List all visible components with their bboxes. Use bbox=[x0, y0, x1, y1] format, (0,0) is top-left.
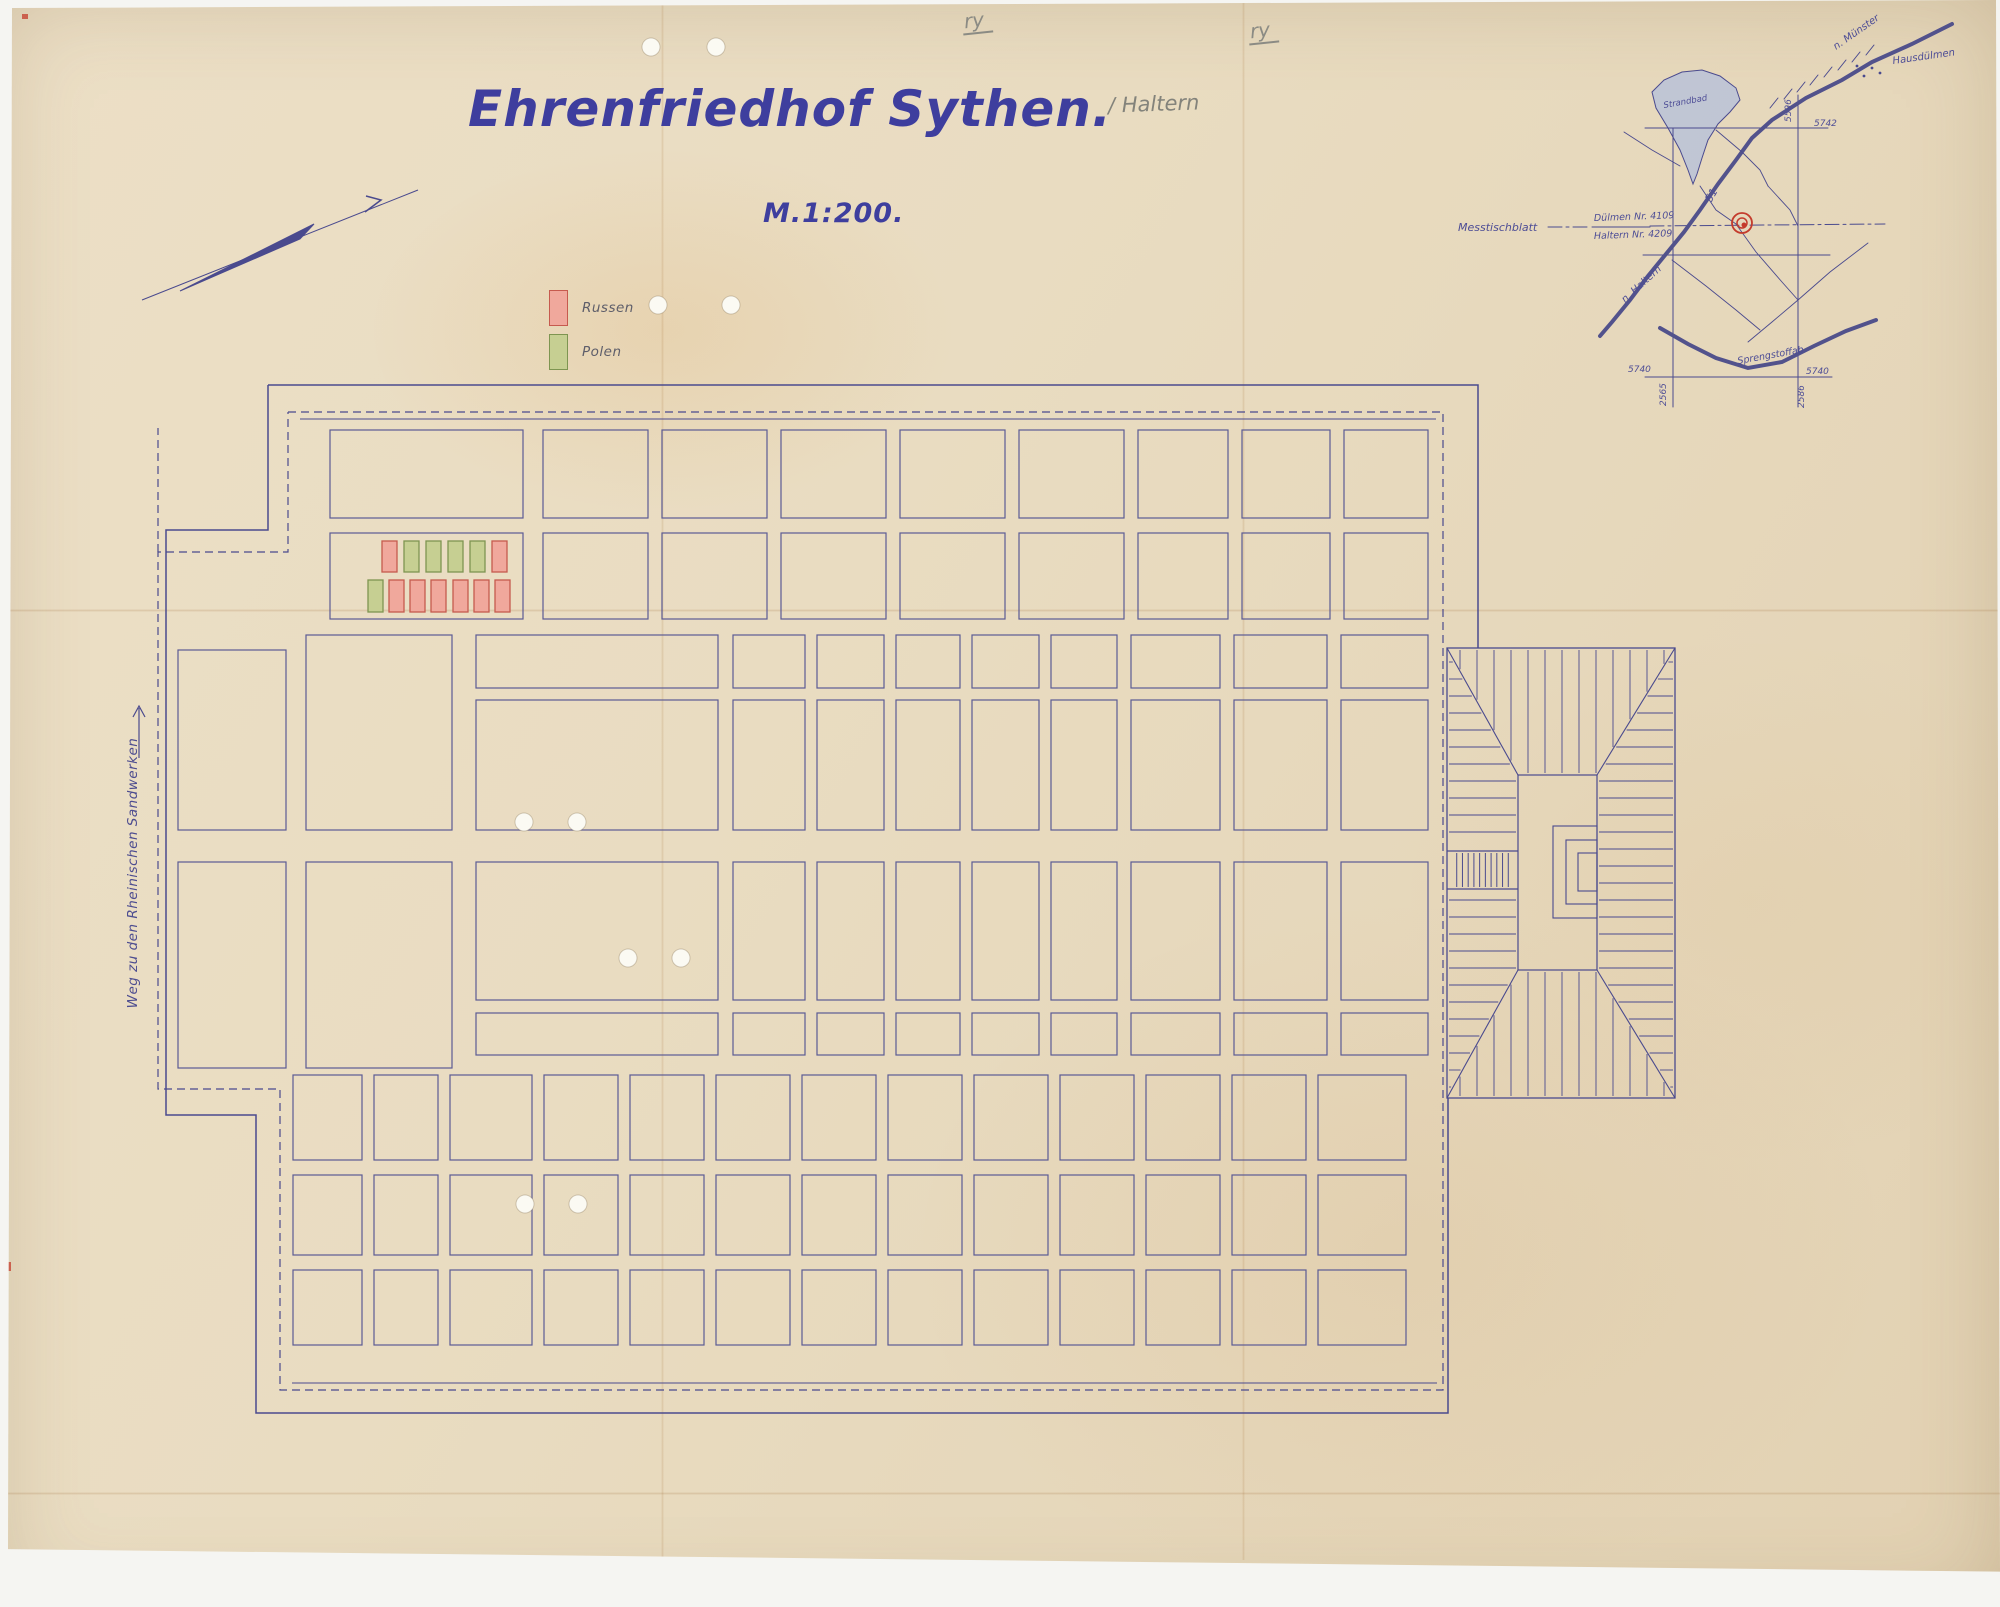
memorial-corner-mitre bbox=[1447, 648, 1518, 775]
red-edge-mark bbox=[8, 1262, 11, 1271]
red-edge-mark bbox=[6, 88, 9, 98]
burial-plot bbox=[293, 1270, 362, 1345]
pencil-mark: ry bbox=[1247, 17, 1280, 46]
scale-label: M.1:200. bbox=[763, 198, 904, 229]
burial-plot bbox=[896, 1013, 960, 1055]
memorial-outer-wall bbox=[1447, 648, 1675, 1098]
legend-label-russen: Russen bbox=[582, 300, 634, 316]
burial-plot bbox=[544, 1270, 618, 1345]
burial-plot bbox=[630, 1175, 704, 1255]
red-edge-mark bbox=[5, 210, 9, 218]
burial-plot bbox=[476, 700, 718, 830]
burial-plot bbox=[662, 533, 767, 619]
burial-plot bbox=[1242, 430, 1330, 518]
burial-plot bbox=[543, 533, 648, 619]
minimap-line bbox=[1798, 243, 1868, 300]
north-arrow-tip bbox=[365, 196, 381, 212]
burial-plot bbox=[1138, 430, 1228, 518]
grave-marker-russen bbox=[389, 580, 404, 612]
burial-plot bbox=[1344, 533, 1428, 619]
minimap-lake bbox=[1652, 70, 1740, 184]
grave-marker-russen bbox=[410, 580, 425, 612]
burial-plot bbox=[1051, 1013, 1117, 1055]
burial-plot bbox=[900, 533, 1005, 619]
burial-plot bbox=[1234, 635, 1327, 688]
memorial-monument bbox=[1578, 853, 1597, 891]
grave-marker-russen bbox=[495, 580, 510, 612]
grave-marker-russen bbox=[431, 580, 446, 612]
burial-plot bbox=[630, 1270, 704, 1345]
burial-plot bbox=[1318, 1270, 1406, 1345]
burial-plot bbox=[888, 1175, 962, 1255]
minimap-line bbox=[1838, 60, 1846, 70]
burial-plot bbox=[1146, 1270, 1220, 1345]
minimap-house-dot bbox=[1863, 75, 1866, 78]
title-annotation-pencil: / Haltern bbox=[1108, 90, 1200, 117]
minimap-label: 5740 bbox=[1806, 367, 1829, 377]
memorial-corner-mitre bbox=[1597, 970, 1675, 1098]
red-edge-mark bbox=[6, 62, 9, 76]
burial-plot bbox=[896, 635, 960, 688]
burial-plot bbox=[974, 1075, 1048, 1160]
burial-plot bbox=[476, 862, 718, 1000]
grave-marker-russen bbox=[382, 541, 397, 572]
burial-plot bbox=[1051, 635, 1117, 688]
minimap-label: n. Münster bbox=[1831, 12, 1882, 52]
grave-marker-russen bbox=[492, 541, 507, 572]
burial-plot bbox=[476, 635, 718, 688]
burial-plot bbox=[178, 650, 286, 830]
burial-plot bbox=[1146, 1175, 1220, 1255]
burial-plot bbox=[888, 1270, 962, 1345]
legend: Russen Polen bbox=[549, 290, 634, 378]
burial-plot bbox=[1341, 700, 1428, 830]
burial-plot bbox=[374, 1075, 438, 1160]
burial-plot bbox=[1344, 430, 1428, 518]
burial-plot bbox=[374, 1175, 438, 1255]
burial-plot bbox=[293, 1075, 362, 1160]
burial-plot bbox=[972, 1013, 1039, 1055]
burial-plot bbox=[1232, 1270, 1306, 1345]
memorial-corner-mitre bbox=[1447, 970, 1518, 1098]
burial-plot bbox=[900, 430, 1005, 518]
burial-plot bbox=[972, 635, 1039, 688]
burial-plot bbox=[972, 700, 1039, 830]
memorial-monument bbox=[1566, 840, 1597, 904]
burial-plot bbox=[476, 1013, 718, 1055]
burial-plot bbox=[293, 1175, 362, 1255]
minimap-label: Dülmen Nr. 4109 bbox=[1594, 210, 1675, 224]
site-plan-drawing: Hausdülmenn. Münster51n. HalternStrandba… bbox=[0, 0, 2000, 1607]
burial-plot bbox=[450, 1175, 532, 1255]
punch-hole bbox=[672, 949, 690, 967]
page-title: Ehrenfriedhof Sythen. bbox=[468, 80, 1112, 138]
legend-item-russen: Russen bbox=[549, 290, 634, 326]
minimap-label: 5596 bbox=[1784, 99, 1794, 122]
punch-hole bbox=[649, 296, 667, 314]
paper-sheet: Hausdülmenn. Münster51n. HalternStrandba… bbox=[0, 0, 2000, 1607]
burial-plot bbox=[802, 1075, 876, 1160]
burial-plot bbox=[1060, 1075, 1134, 1160]
minimap-site-marker bbox=[1742, 223, 1747, 228]
burial-plot bbox=[733, 862, 805, 1000]
minimap-line bbox=[1824, 67, 1832, 77]
minimap-label: Messtischblatt bbox=[1458, 221, 1538, 234]
burial-plot bbox=[781, 430, 886, 518]
minimap-line bbox=[1852, 52, 1860, 62]
burial-plot bbox=[716, 1175, 790, 1255]
burial-plot bbox=[1060, 1175, 1134, 1255]
punch-hole bbox=[619, 949, 637, 967]
burial-plot bbox=[1318, 1175, 1406, 1255]
burial-plot bbox=[896, 862, 960, 1000]
burial-plot bbox=[781, 533, 886, 619]
memorial-courtyard bbox=[1518, 775, 1597, 970]
grave-marker-polen bbox=[404, 541, 419, 572]
grave-marker-polen bbox=[470, 541, 485, 572]
grave-marker-polen bbox=[448, 541, 463, 572]
legend-label-polen: Polen bbox=[582, 344, 622, 360]
burial-plot bbox=[1131, 862, 1220, 1000]
burial-plot bbox=[716, 1075, 790, 1160]
minimap-label: Haltern Nr. 4209 bbox=[1594, 228, 1673, 242]
punch-hole bbox=[707, 38, 725, 56]
burial-plot bbox=[1232, 1175, 1306, 1255]
punch-hole bbox=[642, 38, 660, 56]
minimap-label: 2565 bbox=[1659, 383, 1669, 406]
legend-swatch-polen bbox=[549, 334, 568, 370]
minimap-label: 2586 bbox=[1797, 385, 1807, 408]
burial-plot bbox=[1060, 1270, 1134, 1345]
burial-plot bbox=[1019, 533, 1124, 619]
burial-plot bbox=[888, 1075, 962, 1160]
burial-plot bbox=[817, 862, 884, 1000]
burial-plot bbox=[1234, 1013, 1327, 1055]
burial-plot bbox=[817, 635, 884, 688]
burial-plot bbox=[544, 1075, 618, 1160]
minimap-line bbox=[1672, 260, 1760, 330]
minimap-house-dot bbox=[1856, 65, 1859, 68]
burial-plot bbox=[450, 1270, 532, 1345]
minimap-line bbox=[1624, 132, 1680, 166]
burial-plot bbox=[716, 1270, 790, 1345]
burial-plot bbox=[974, 1270, 1048, 1345]
burial-plot bbox=[974, 1175, 1048, 1255]
burial-plot bbox=[662, 430, 767, 518]
burial-plot bbox=[1341, 1013, 1428, 1055]
burial-plot bbox=[543, 430, 648, 518]
burial-plot bbox=[1146, 1075, 1220, 1160]
west-road-label: Weg zu den Rheinischen Sandwerken bbox=[125, 738, 141, 1009]
burial-plot bbox=[330, 430, 523, 518]
punch-hole bbox=[515, 813, 533, 831]
minimap-line bbox=[1768, 186, 1798, 226]
burial-plot bbox=[1232, 1075, 1306, 1160]
burial-plot bbox=[1051, 700, 1117, 830]
burial-plot bbox=[1341, 862, 1428, 1000]
burial-plot bbox=[1234, 862, 1327, 1000]
burial-plot bbox=[972, 862, 1039, 1000]
minimap-line bbox=[1650, 224, 1885, 226]
minimap-line bbox=[1810, 75, 1818, 85]
burial-plot bbox=[1131, 1013, 1220, 1055]
cemetery-outer-boundary bbox=[268, 385, 1478, 648]
burial-plot bbox=[630, 1075, 704, 1160]
legend-swatch-russen bbox=[549, 290, 568, 326]
minimap-road bbox=[1600, 24, 1952, 336]
burial-plot bbox=[733, 700, 805, 830]
cemetery-outer-boundary bbox=[166, 385, 1448, 1413]
burial-plot bbox=[817, 700, 884, 830]
minimap-line bbox=[1736, 224, 1798, 300]
minimap-label: n. Haltern bbox=[1620, 264, 1664, 305]
burial-plot bbox=[544, 1175, 618, 1255]
memorial-corner-mitre bbox=[1597, 648, 1675, 775]
burial-plot bbox=[733, 635, 805, 688]
scanned-sheet: Hausdülmenn. Münster51n. HalternStrandba… bbox=[0, 0, 2000, 1607]
punch-hole bbox=[722, 296, 740, 314]
minimap-line bbox=[1784, 89, 1792, 99]
burial-plot bbox=[306, 635, 452, 830]
minimap-label: 5740 bbox=[1628, 365, 1651, 375]
burial-plot bbox=[802, 1175, 876, 1255]
punch-hole bbox=[569, 1195, 587, 1213]
grave-marker-polen bbox=[368, 580, 383, 612]
burial-plot bbox=[1051, 862, 1117, 1000]
burial-plot bbox=[374, 1270, 438, 1345]
burial-plot bbox=[1341, 635, 1428, 688]
burial-plot bbox=[1242, 533, 1330, 619]
pencil-mark: ry bbox=[961, 7, 994, 36]
burial-plot bbox=[896, 700, 960, 830]
burial-plot bbox=[1131, 635, 1220, 688]
burial-plot bbox=[178, 862, 286, 1068]
minimap-house-dot bbox=[1871, 67, 1874, 70]
burial-plot bbox=[1019, 430, 1124, 518]
burial-plot bbox=[817, 1013, 884, 1055]
red-edge-mark bbox=[5, 545, 9, 555]
north-arrow-needle bbox=[180, 224, 314, 291]
grave-marker-polen bbox=[426, 541, 441, 572]
grave-marker-russen bbox=[474, 580, 489, 612]
red-edge-mark bbox=[22, 14, 28, 19]
minimap-line bbox=[1770, 98, 1778, 108]
cemetery-fence-dashed bbox=[158, 412, 1443, 1390]
legend-item-polen: Polen bbox=[549, 334, 634, 370]
minimap-line bbox=[1866, 45, 1874, 55]
burial-plot bbox=[733, 1013, 805, 1055]
grave-marker-russen bbox=[453, 580, 468, 612]
punch-hole bbox=[568, 813, 586, 831]
minimap-line bbox=[1797, 82, 1805, 92]
burial-plot bbox=[306, 862, 452, 1068]
burial-plot bbox=[1131, 700, 1220, 830]
burial-plot bbox=[802, 1270, 876, 1345]
burial-plot bbox=[1318, 1075, 1406, 1160]
burial-plot bbox=[450, 1075, 532, 1160]
minimap-label: 5742 bbox=[1814, 119, 1837, 129]
burial-plot bbox=[1234, 700, 1327, 830]
minimap-house-dot bbox=[1879, 72, 1882, 75]
minimap-line bbox=[1748, 300, 1798, 342]
burial-plot bbox=[1138, 533, 1228, 619]
punch-hole bbox=[516, 1195, 534, 1213]
